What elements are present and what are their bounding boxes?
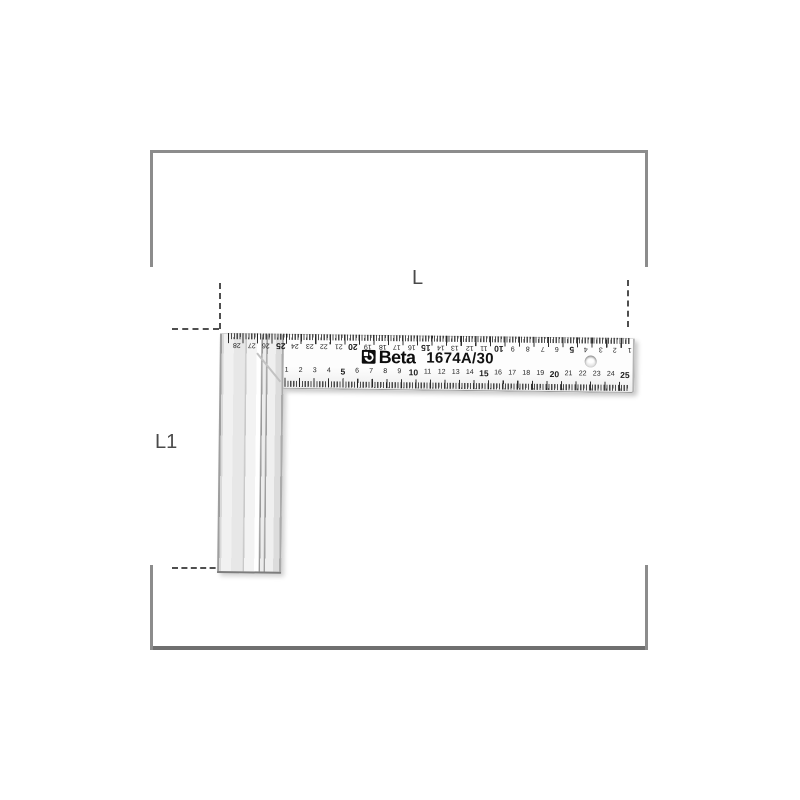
frame-border-top (150, 150, 648, 153)
blade-markings: 2827262524232221201918171615141312111098… (219, 333, 634, 391)
scale-number: 9 (397, 368, 401, 375)
scale-number: 21 (565, 370, 573, 377)
scale-number: 3 (313, 367, 317, 374)
scale-number: 3 (599, 346, 603, 353)
frame-border-right-upper (645, 150, 648, 267)
scale-number: 20 (348, 343, 358, 352)
scale-number: 4 (584, 345, 588, 352)
scale-number: 22 (320, 342, 328, 349)
scale-number: 10 (409, 368, 419, 377)
scale-number: 22 (579, 370, 587, 377)
scale-number: 24 (291, 342, 299, 349)
scale-number: 23 (593, 371, 601, 378)
dimension-line-top-left (172, 328, 219, 330)
frame-border-left-lower (150, 565, 153, 650)
scale-number: 7 (540, 345, 544, 352)
frame-border-right-lower (645, 565, 648, 650)
scale-number: 9 (511, 345, 515, 352)
scale-number: 1 (285, 367, 289, 374)
scale-number: 19 (536, 370, 544, 377)
scale-number: 17 (508, 370, 516, 377)
product-image-canvas: L L1 28272625242322212019181716151413121… (0, 0, 800, 800)
frame-border-left-upper (150, 150, 153, 267)
scale-number: 21 (335, 342, 343, 349)
scale-number: 23 (306, 342, 314, 349)
dimension-line-left-vertical (219, 283, 221, 329)
scale-number: 20 (550, 370, 560, 379)
brand-text: Beta (379, 348, 416, 366)
scale-number: 24 (607, 371, 615, 378)
scale-number: 25 (276, 342, 286, 351)
brand-row: Beta 1674A/30 (362, 346, 494, 370)
beta-logo-icon (362, 350, 376, 364)
scale-number: 4 (327, 367, 331, 374)
scale-number: 6 (355, 368, 359, 375)
hanging-hole (585, 355, 597, 367)
scale-number: 8 (526, 345, 530, 352)
scale-number: 2 (299, 367, 303, 374)
scale-number: 12 (438, 369, 446, 376)
dimension-label-l: L (412, 268, 423, 288)
scale-number: 18 (522, 370, 530, 377)
scale-number: 13 (452, 369, 460, 376)
scale-number: 26 (262, 342, 270, 349)
scale-number: 10 (494, 344, 504, 353)
scale-number: 16 (494, 369, 502, 376)
scale-number: 6 (555, 345, 559, 352)
scale-number: 15 (479, 369, 489, 378)
dimension-label-l1: L1 (155, 432, 177, 452)
scale-number: 5 (341, 367, 346, 376)
try-square: 2827262524232221201918171615141312111098… (217, 333, 634, 575)
scale-number: 27 (247, 341, 255, 348)
dimension-line-right-vertical (627, 280, 629, 327)
scale-number: 25 (620, 371, 630, 380)
scale-number: 1 (628, 346, 632, 353)
scale-number: 2 (613, 346, 617, 353)
model-text: 1674A/30 (426, 350, 494, 366)
scale-number: 7 (369, 368, 373, 375)
scale-number: 8 (383, 368, 387, 375)
frame-border-bottom (150, 646, 648, 650)
scale-number: 5 (569, 345, 574, 354)
scale-number: 28 (233, 341, 241, 348)
scale-number: 14 (466, 369, 474, 376)
scale-number: 11 (424, 368, 431, 375)
